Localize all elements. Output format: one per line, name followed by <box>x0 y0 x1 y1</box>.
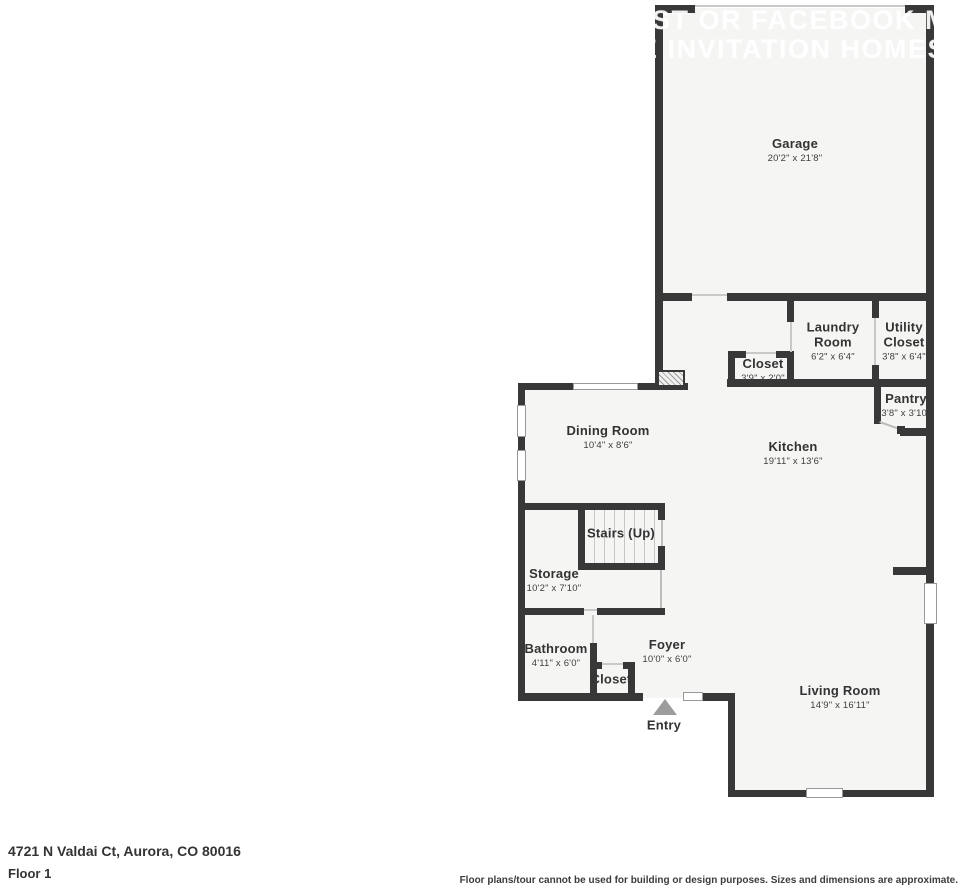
wall <box>597 608 665 615</box>
room-label-laundry: Laundry Room 6'2" x 6'4" <box>798 320 868 363</box>
wall <box>728 351 735 387</box>
watermark: IST OR FACEBOOK MA E INVITATION HOMES W <box>643 6 960 64</box>
wall <box>518 503 665 510</box>
wall <box>874 387 881 424</box>
room-label-closet: Closet 3'9" x 2'0" <box>741 356 785 384</box>
wall <box>518 383 525 405</box>
wall <box>843 790 934 797</box>
wall <box>658 503 665 520</box>
room-label-utility-closet: Utility Closet 3'8" x 6'4" <box>877 320 931 363</box>
door-opening <box>584 609 597 611</box>
room-label-living: Living Room 14'9" x 16'11" <box>800 683 881 711</box>
watermark-line1: IST OR FACEBOOK MA <box>643 6 960 35</box>
entry-label: Entry <box>647 718 681 733</box>
room-label-pantry: Pantry 3'8" x 3'10" <box>881 391 930 419</box>
room-label-kitchen: Kitchen 19'11" x 13'6" <box>763 439 822 467</box>
wall <box>658 546 665 570</box>
wall <box>518 608 584 615</box>
wall <box>926 622 934 797</box>
wall <box>787 301 794 322</box>
room-label-garage: Garage 20'2" x 21'8" <box>768 136 823 164</box>
floor-number-text: Floor 1 <box>8 866 51 881</box>
wall <box>518 693 643 701</box>
window <box>806 788 843 798</box>
wall <box>900 428 934 436</box>
wall <box>728 790 806 797</box>
room-label-foyer-closet: Closet <box>591 672 632 687</box>
wall <box>578 503 585 570</box>
room-label-stairs: Stairs (Up) <box>587 526 655 541</box>
entry-sidelight-window <box>683 692 703 701</box>
window <box>573 383 638 390</box>
stair-rail-line <box>661 520 663 546</box>
floor-plan-page: IST OR FACEBOOK MA E INVITATION HOMES W … <box>0 0 960 888</box>
door-opening <box>592 615 594 643</box>
wall <box>655 293 692 301</box>
wall <box>872 301 879 318</box>
room-label-foyer: Foyer 10'0" x 6'0" <box>642 637 691 665</box>
wall <box>518 383 573 390</box>
wall <box>590 662 602 669</box>
room-label-bathroom: Bathroom 4'11" x 6'0" <box>525 641 588 669</box>
door-opening <box>790 322 792 352</box>
pantry-door-jamb <box>897 426 905 434</box>
wall <box>727 293 934 301</box>
wall <box>518 437 525 450</box>
disclaimer-text: Floor plans/tour cannot be used for buil… <box>460 875 958 886</box>
door-opening <box>874 318 876 365</box>
door-opening <box>746 352 776 354</box>
window <box>517 450 526 481</box>
door-opening <box>692 294 727 296</box>
wall <box>728 693 735 797</box>
watermark-line2: E INVITATION HOMES W <box>639 35 960 64</box>
address-text: 4721 N Valdai Ct, Aurora, CO 80016 <box>8 843 241 859</box>
window <box>924 583 937 624</box>
window <box>517 405 526 437</box>
room-label-storage: Storage 10'2" x 7'10" <box>527 566 582 594</box>
wall <box>578 563 665 570</box>
opening-line <box>660 570 662 608</box>
wall <box>893 567 934 575</box>
entry-arrow-icon <box>653 699 677 715</box>
hatched-fixture <box>657 370 685 387</box>
room-label-dining: Dining Room 10'4" x 8'6" <box>566 423 649 451</box>
door-opening <box>602 663 623 665</box>
